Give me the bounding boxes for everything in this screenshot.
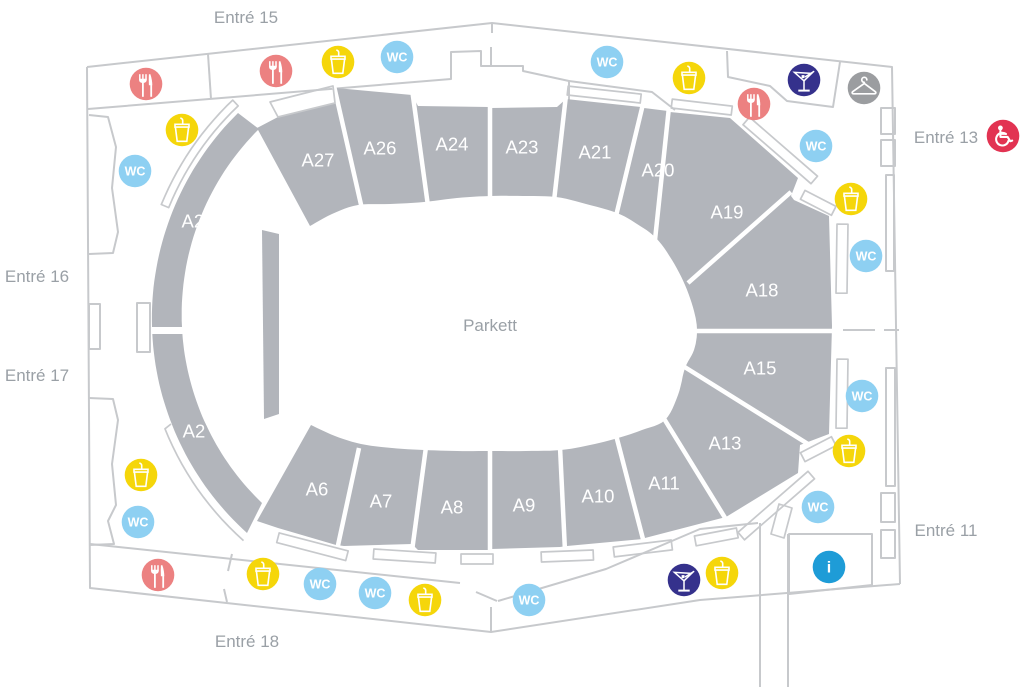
svg-text:Entré 16: Entré 16: [5, 267, 69, 286]
svg-text:Entré 17: Entré 17: [5, 366, 69, 385]
svg-text:A7: A7: [370, 491, 393, 512]
svg-text:A10: A10: [582, 486, 615, 507]
svg-text:i: i: [827, 560, 831, 577]
svg-text:A9: A9: [513, 495, 536, 516]
svg-text:A29: A29: [182, 211, 215, 232]
svg-text:A19: A19: [711, 202, 744, 223]
svg-text:A2: A2: [183, 421, 206, 442]
svg-text:WC: WC: [365, 587, 386, 601]
svg-text:A11: A11: [648, 473, 680, 494]
svg-text:WC: WC: [125, 165, 146, 179]
svg-text:Parkett: Parkett: [463, 316, 517, 335]
svg-text:A20: A20: [642, 160, 675, 181]
svg-text:A26: A26: [364, 138, 397, 159]
svg-text:A23: A23: [506, 137, 539, 158]
svg-text:A27: A27: [302, 150, 335, 171]
svg-text:WC: WC: [310, 578, 331, 592]
svg-text:Entré 13: Entré 13: [914, 128, 978, 147]
svg-text:A8: A8: [441, 497, 464, 518]
svg-text:WC: WC: [856, 250, 877, 264]
svg-text:Entré 15: Entré 15: [214, 8, 278, 27]
svg-text:A6: A6: [306, 479, 329, 500]
svg-text:WC: WC: [128, 516, 149, 530]
svg-text:A15: A15: [744, 358, 777, 379]
svg-text:WC: WC: [808, 501, 829, 515]
svg-text:WC: WC: [597, 56, 618, 70]
svg-text:WC: WC: [519, 594, 540, 608]
svg-text:Entré 11: Entré 11: [914, 521, 977, 540]
svg-text:A18: A18: [746, 280, 779, 301]
svg-text:A24: A24: [436, 134, 469, 155]
svg-text:A21: A21: [579, 142, 612, 163]
svg-text:WC: WC: [852, 390, 873, 404]
svg-text:Entré 18: Entré 18: [215, 632, 279, 651]
svg-text:A13: A13: [709, 433, 742, 454]
svg-text:WC: WC: [806, 140, 827, 154]
svg-text:WC: WC: [387, 51, 408, 65]
